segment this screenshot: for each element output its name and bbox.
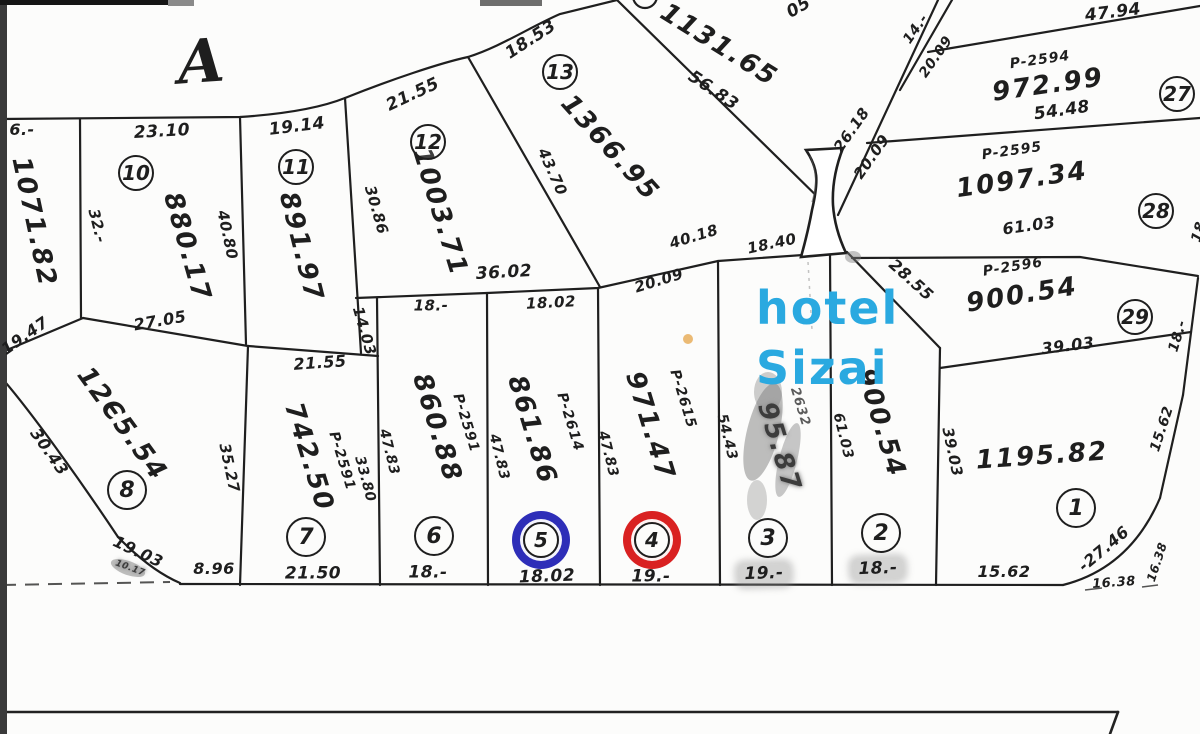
pnum-2595: P-2595: [981, 140, 1043, 162]
dim-05-cut: 05: [784, 0, 814, 22]
dim-32: 32.-: [86, 207, 109, 244]
pnum-2596: P-2596: [982, 255, 1044, 278]
dim-2746: -27.46: [1076, 524, 1132, 575]
dim-4783-a: 47.83: [377, 428, 402, 477]
dim-1802-p5bot: 18.02: [519, 568, 576, 587]
hotel-annotation-line2: Sizai: [756, 338, 899, 398]
dim-3043: 30.43: [27, 426, 71, 479]
dim-4080: 40.80: [214, 209, 239, 261]
area-891-97: 891.97: [275, 189, 327, 304]
parcel-marker-8: 8: [107, 470, 147, 510]
hotel-annotation-line1: hotel: [756, 278, 899, 338]
parcel-marker-13: 13: [542, 54, 578, 90]
hotel-annotation: hotel Sizai: [756, 278, 899, 398]
parcel-marker-5-blue-highlight: 5: [523, 522, 559, 558]
dim-6-cut: 6.-: [9, 122, 34, 138]
dim-5443: 54.43: [715, 413, 740, 462]
area-900-54-right: 900.54: [964, 273, 1079, 316]
area-880-17: 880.17: [159, 189, 215, 304]
area-861-86: 861.86: [503, 372, 561, 487]
dim-5683: 56.83: [685, 68, 741, 114]
area-1097-34: 1097.34: [955, 158, 1090, 202]
dim-2310: 23.10: [133, 122, 190, 142]
dim-2155-p7: 21.55: [293, 353, 347, 373]
dim-14: 14.-: [901, 12, 931, 47]
area-1131-65: 1131.65: [656, 0, 782, 91]
dim-1403: 14.03: [350, 305, 378, 357]
parcel-marker-12: 12: [410, 124, 446, 160]
dim-19-p3bot: 19.-: [739, 564, 789, 585]
dim-1914: 19.14: [268, 115, 326, 139]
dim-3086: 30.86: [362, 184, 390, 236]
area-1003-71: 1003.71: [408, 145, 472, 279]
area-1205-54: 12Є5.54: [72, 362, 171, 485]
dim-6103-right: 61.03: [1002, 214, 1057, 237]
dim-18-p6top: 18.-: [414, 299, 449, 314]
parcel-marker-6: 6: [414, 516, 454, 556]
dim-18-p6bot: 18.-: [408, 565, 447, 582]
area-860-88: 860.88: [408, 370, 466, 485]
dim-4370: 43.70: [535, 146, 569, 198]
dim-2705: 27.05: [132, 309, 187, 334]
area-1071-82: 1071.82: [8, 155, 61, 290]
parcel-marker-10: 10: [118, 155, 154, 191]
area-1366-95: 1366.95: [556, 90, 664, 206]
dim-2009-top: 20.09: [917, 34, 955, 80]
parcel-marker-4-red-highlight: 4: [634, 522, 670, 558]
dim-1802-p5top: 18.02: [526, 294, 577, 312]
dim-1947: 19.47: [0, 314, 51, 358]
parcel-marker-28: 28: [1138, 193, 1174, 229]
dim-18-p2bot: 18.-: [853, 559, 903, 580]
dim-6103-p2: 61.03: [831, 412, 856, 461]
dim-5448: 54.48: [1033, 99, 1091, 124]
pnum-2615: P-2615: [667, 368, 698, 430]
parcel-marker-27: 27: [1159, 76, 1195, 112]
dim-2009-diag: 20.09: [852, 132, 893, 182]
parcel-marker-29: 29: [1117, 299, 1153, 335]
area-742-50: 742.50: [280, 399, 338, 514]
dim-19-p4bot: 19.-: [631, 569, 670, 586]
section-letter: A: [176, 30, 227, 93]
parcel-marker-11: 11: [278, 149, 314, 185]
dim-3602: 36.02: [475, 263, 532, 283]
dim-3903-p1: 39.03: [939, 426, 964, 478]
dim-1562-bot: 15.62: [977, 564, 1030, 580]
dim-4783-b: 47.83: [487, 433, 512, 482]
dim-1562-redge: 15.62: [1148, 405, 1176, 454]
dim-3380: 33.80: [352, 455, 378, 504]
dim-1840: 18.40: [746, 231, 798, 256]
parcel-marker-3: 3: [748, 518, 788, 558]
dim-1638-redge: 16.38: [1145, 541, 1169, 583]
map-labels-layer: A6.-23.1019.1432.-880.1740.801071.82891.…: [0, 0, 1200, 734]
dim-2009-slope: 20.09: [633, 267, 685, 296]
dim-18-redge: 18.-: [1167, 318, 1190, 353]
dim-2150: 21.50: [285, 566, 341, 583]
pnum-2614: P-2614: [554, 391, 585, 453]
dim-cut-right: 18: [1189, 220, 1200, 244]
dim-4794: 47.94: [1084, 1, 1142, 25]
dim-2155-arc: 21.55: [384, 75, 442, 114]
parcel-marker-2: 2: [861, 513, 901, 553]
parcel-marker-7: 7: [286, 517, 326, 557]
dim-3527: 35.27: [216, 442, 241, 494]
dim-4783-c: 47.83: [596, 430, 621, 479]
dim-4018: 40.18: [668, 223, 720, 252]
dim-896: 8.96: [193, 561, 234, 577]
parcel-marker-1: 1: [1056, 488, 1096, 528]
area-1195-82: 1195.82: [975, 438, 1109, 473]
dim-3903-right: 39.03: [1041, 335, 1096, 357]
dim-1638-bot: 16.38: [1092, 575, 1136, 591]
cadastral-map: A6.-23.1019.1432.-880.1740.801071.82891.…: [0, 0, 1200, 734]
